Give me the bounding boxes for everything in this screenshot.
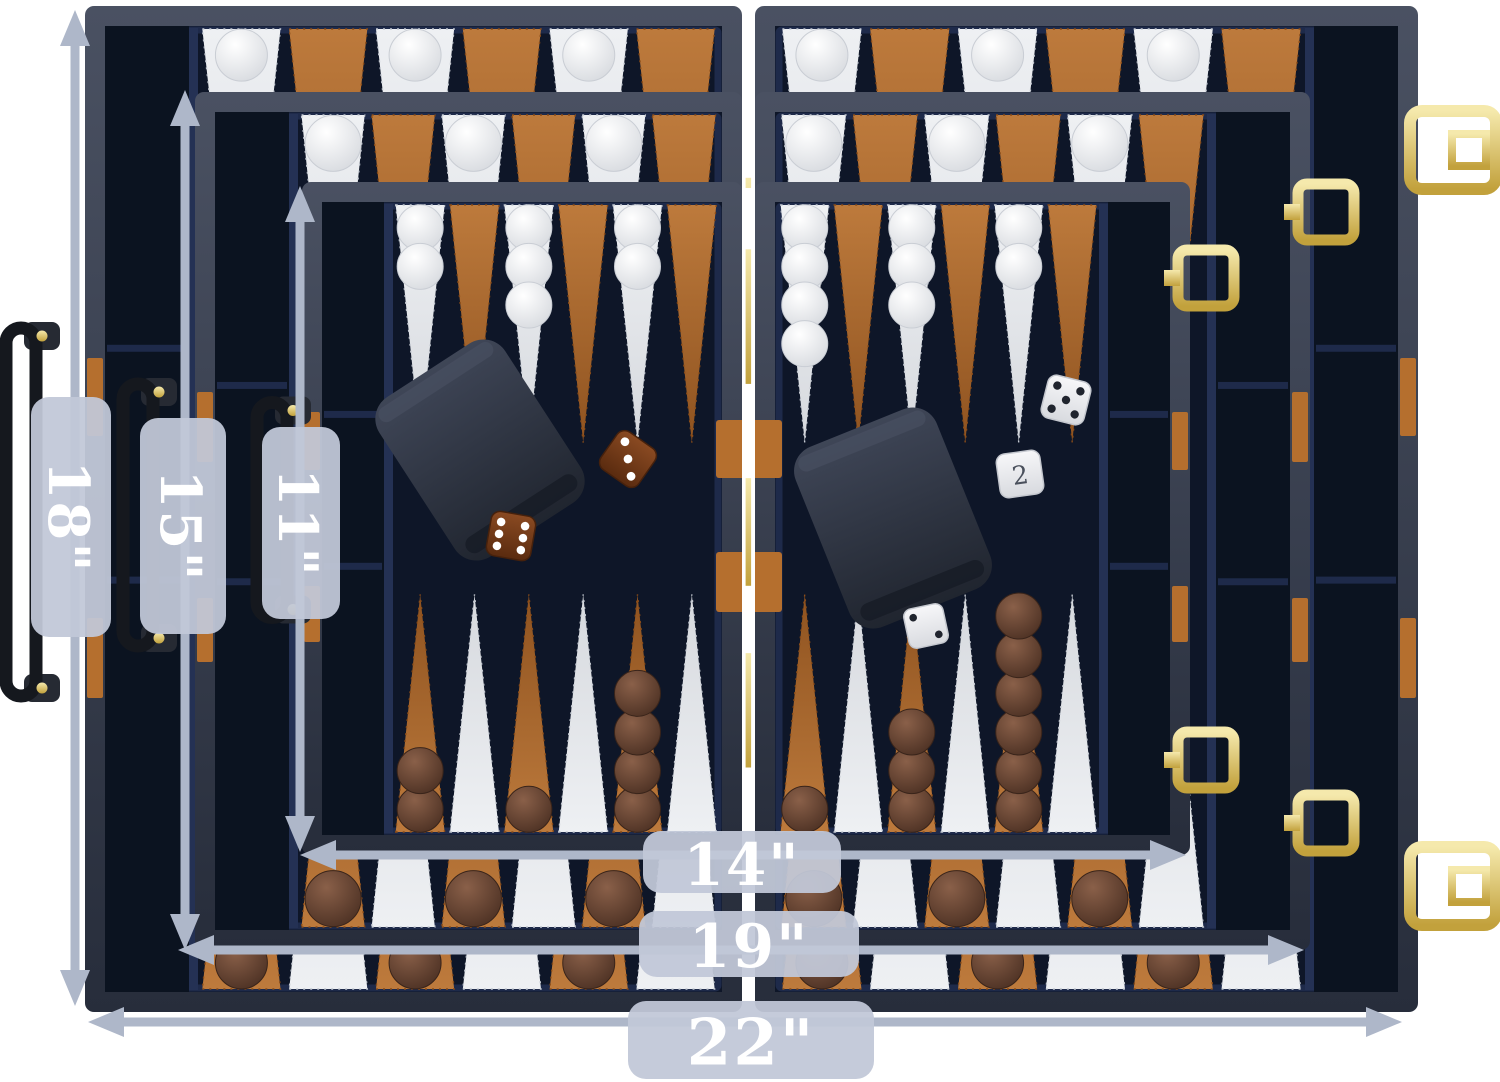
white-die-2 [902,602,949,649]
brass-hinge [746,249,752,384]
tray-divider [1316,577,1396,584]
white-checker [506,282,552,328]
brass-pin [154,387,165,398]
leather-accent [1172,412,1188,470]
leather-accent [1292,392,1308,462]
white-checker [445,115,501,171]
tray-divider [1110,411,1168,418]
tray-divider [107,345,187,352]
brown-checker [1072,871,1128,927]
brown-checker [445,871,501,927]
white-checker [972,29,1024,81]
white-checker [615,243,661,289]
leather-accent [1400,618,1416,698]
white-checker [586,115,642,171]
dimension-label-w19: 19" [639,911,859,982]
product-image: 218"15"11"14"19"22" [0,0,1500,1082]
white-checker [786,115,842,171]
tray-divider [1218,578,1288,585]
tray-divider [324,411,382,418]
brown-checker [889,709,935,755]
brown-checker [397,748,443,794]
white-checker [796,29,848,81]
tray-divider [1218,382,1288,389]
backgammon-size-comparison-graphic: 218"15"11"14"19"22" [0,0,1500,1082]
white-checker [782,321,828,367]
brown-checker [506,786,552,832]
checker-tray [1216,112,1290,930]
tray-wall [1099,204,1108,833]
dimension-label-h11: 11" [262,427,340,619]
tray-wall [1207,114,1216,928]
dimension-label-w22: 22" [628,1001,874,1081]
white-checker [397,243,443,289]
brown-checker [996,593,1042,639]
tray-divider [1316,345,1396,352]
white-checker [929,115,985,171]
white-checker [1147,29,1199,81]
dimension-text-w19: 19" [689,912,810,982]
white-checker [305,115,361,171]
dimension-text-w22: 22" [687,1006,815,1081]
leather-accent [1400,358,1416,436]
dimension-text-w14: 14" [684,831,801,899]
dimension-label-w14: 14" [643,831,841,899]
dimension-text-h11: 11" [266,468,330,577]
tray-divider [217,382,287,389]
white-checker [389,29,441,81]
brass-hinge [746,653,752,767]
white-checker [996,243,1042,289]
white-checker [563,29,615,81]
tray-divider [1110,563,1168,570]
checker-tray [1108,202,1170,835]
white-checker [215,29,267,81]
brown-checker [929,871,985,927]
brass-pin [154,633,165,644]
brown-checker [782,786,828,832]
dimension-text-h18: 18" [35,460,101,573]
white-checker [1072,115,1128,171]
dimension-label-h18: 18" [31,397,111,637]
brown-checker [615,670,661,716]
brown-checker [305,871,361,927]
white-die-5 [1039,373,1092,426]
doubling-cube: 2 [995,449,1045,499]
gold-latch [1410,111,1496,189]
brass-pin [37,331,48,342]
leather-accent [1172,586,1188,642]
dimension-label-h15: 15" [140,418,226,634]
brass-hinge [746,478,752,586]
gold-latch [1410,847,1496,925]
tray-wall [384,204,393,833]
dimension-text-h15: 15" [147,469,213,582]
brown-die-6 [485,510,537,562]
brown-checker [586,871,642,927]
white-checker [889,282,935,328]
leather-accent [1292,598,1308,662]
14in-case [257,182,1234,855]
brass-pin [37,683,48,694]
